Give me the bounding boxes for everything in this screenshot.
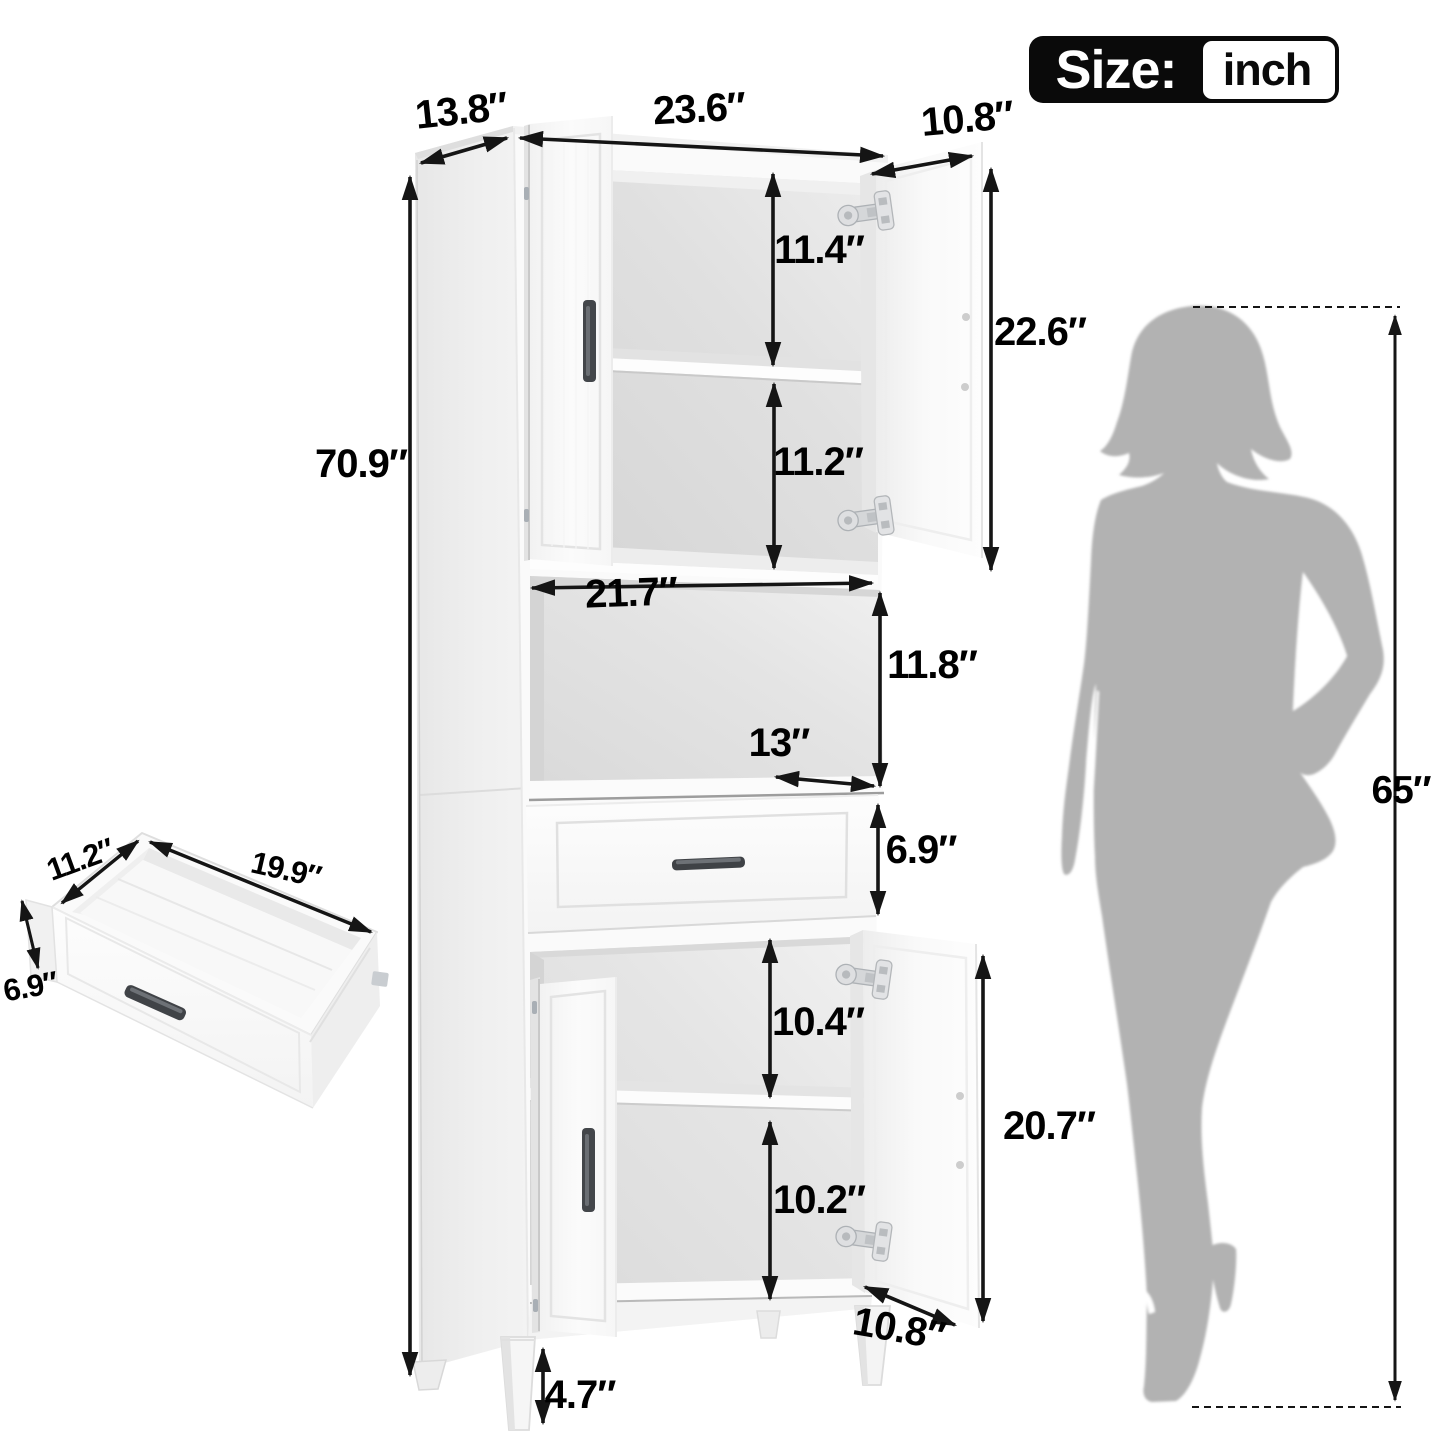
svg-text:10.8″: 10.8″ (919, 93, 1015, 145)
svg-text:10.4″: 10.4″ (772, 1000, 865, 1044)
svg-text:11.8″: 11.8″ (887, 643, 978, 687)
svg-text:20.7″: 20.7″ (1003, 1104, 1096, 1148)
svg-text:Size:: Size: (1055, 40, 1176, 100)
svg-text:11.4″: 11.4″ (774, 228, 865, 272)
svg-text:22.6″: 22.6″ (994, 310, 1087, 354)
svg-text:13″: 13″ (749, 721, 810, 765)
svg-text:65″: 65″ (1371, 769, 1430, 812)
svg-text:6.9″: 6.9″ (886, 828, 958, 872)
svg-text:4.7″: 4.7″ (545, 1373, 617, 1417)
svg-text:11.2″: 11.2″ (773, 440, 864, 484)
svg-text:21.7″: 21.7″ (584, 569, 678, 616)
svg-text:10.2″: 10.2″ (773, 1178, 866, 1222)
svg-text:23.6″: 23.6″ (652, 85, 747, 134)
svg-text:inch: inch (1223, 44, 1312, 95)
svg-text:70.9″: 70.9″ (315, 442, 408, 486)
